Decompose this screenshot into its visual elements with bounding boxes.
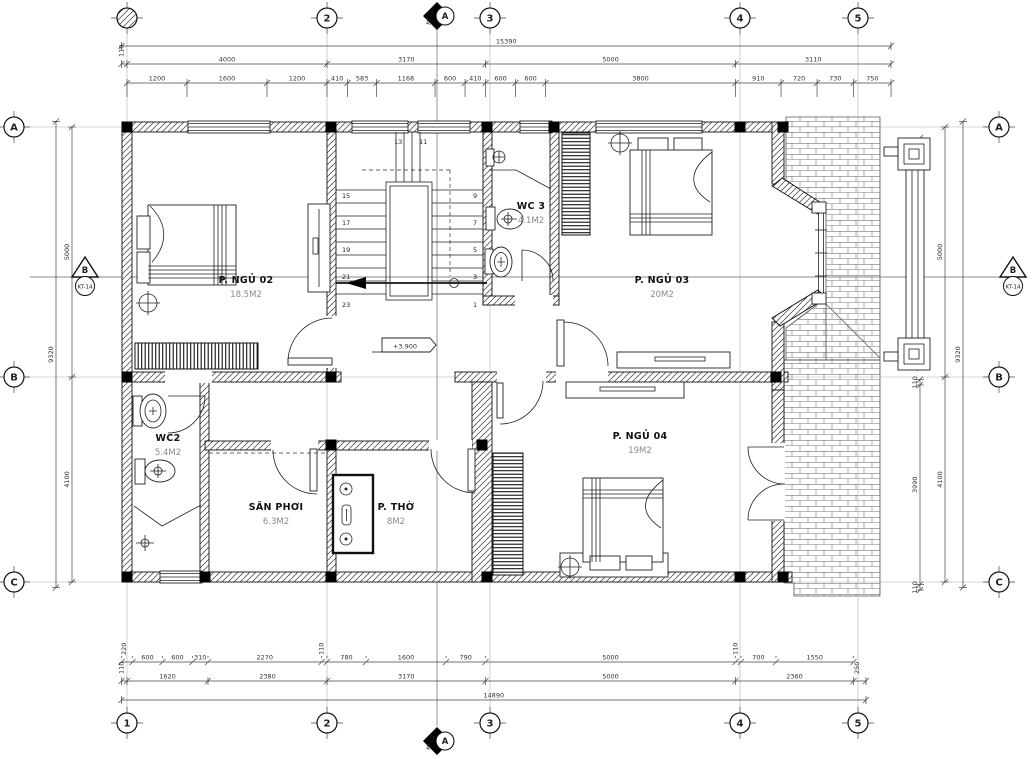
dim-label: 110 [117,662,125,674]
door-opening [497,371,546,383]
room-area: 18.5M2 [230,290,262,300]
dim-label: 600 [444,75,456,83]
pillow [626,556,652,570]
door-arc-bedroom02 [288,318,332,362]
desk [566,382,684,398]
section-marker-ref: KT-14 [1005,285,1021,291]
pillow [137,216,150,249]
toilet-tank [486,207,495,230]
dim-label: 1550 [806,654,823,662]
dim-label: 600 [494,75,506,83]
grid-bubble-col-1-top [117,8,137,28]
stair-number: 3 [473,273,477,281]
dim-label: 410 [469,75,481,83]
floor-plan-canvas: 1539011040003170500031101200160012004105… [0,0,1033,759]
stair-number: 17 [342,219,350,227]
door-arc-wc2 [168,396,205,433]
door-slab-bedroom02 [288,358,332,365]
door-opening [165,371,212,383]
pergola-stub [884,352,898,361]
column [326,440,337,451]
column [482,572,493,583]
room-area: 20M2 [650,290,674,300]
dim-label: 9320 [954,346,962,363]
stair-number: 7 [473,219,477,227]
dim-label: 3990 [911,476,919,493]
dim-label: 600 [524,75,536,83]
section-marker-letter: B [82,266,88,276]
stair-number: 9 [473,192,477,200]
grid-bubble-label: B [10,373,18,384]
stair-number: 21 [342,273,350,281]
wall [122,372,341,382]
bedroom04-furniture [493,382,684,577]
pergola-cap [898,338,930,370]
section-marker-letter: A [442,12,449,22]
bedroom02-furniture [135,204,330,369]
bay-jamb [812,293,826,304]
stair-number: 13 [394,138,402,146]
dim-label: 4000 [219,56,236,64]
door-slab-ptho [468,449,475,491]
column [122,122,133,133]
dim-label: 2380 [259,673,276,681]
grid-bubble-label: A [10,123,18,134]
dim-label: 583 [356,75,368,83]
dim-label: 720 [793,75,805,83]
shower-partition [134,505,201,526]
grid-bubble-label: 2 [324,719,331,730]
dim-label: 750 [866,75,878,83]
dim-label: 110 [117,45,125,57]
room-area: 5.4M2 [155,448,181,458]
shower-partition [489,170,551,189]
desk [617,352,730,368]
dim-label: 2360 [786,673,803,681]
bedroom03-furniture [562,133,730,368]
column [122,372,133,383]
room-name: SÂN PHƠI [249,501,304,513]
dim-label: 2270 [256,654,273,662]
dim-label: 110 [731,643,739,655]
dim-label: 250 [853,662,861,674]
room-area: 6.3M2 [263,517,289,527]
section-marker-letter: B [1010,266,1016,276]
column [549,122,560,133]
dim-label: 1200 [289,75,306,83]
grid-bubble-label: 2 [324,14,331,25]
bed [148,205,236,285]
dim-label: 700 [752,654,764,662]
elevation-value: +3.900 [393,343,417,351]
grid-bubble-label: 3 [487,14,494,25]
dim-label: 910 [752,75,764,83]
dim-label: 5000 [602,673,619,681]
dim-label: 1600 [219,75,236,83]
wardrobe [562,133,590,235]
wc3-fixtures [485,149,551,277]
pergola-stub [884,147,898,156]
pergola-beam [906,170,924,338]
pillow [590,556,620,570]
wall [122,122,132,582]
column [778,122,789,133]
dim-label: 5000 [63,244,71,261]
section-marker-ref: KT-14 [77,285,93,291]
room-name: P. NGỦ 04 [613,429,668,442]
stair-number: 23 [342,301,350,309]
dim-label: 110 [317,643,325,655]
dim-label: 3170 [398,56,415,64]
column [200,572,211,583]
wall [122,572,792,582]
grid-bubble-label: 4 [737,719,744,730]
section-marker-letter: A [442,737,449,747]
dim-label: 600 [171,654,183,662]
door-slab-bedroom04 [497,383,503,418]
column [778,572,789,583]
door-arc-wc3 [522,250,553,281]
pergola-cap [898,138,930,170]
louver-cabinet [135,343,258,369]
dim-label: 3110 [805,56,822,64]
grid-bubble-label: C [10,578,17,589]
grid-bubble-label: 5 [855,14,862,25]
column [771,372,782,383]
dim-label: 310 [194,654,206,662]
bay-jamb [812,202,826,213]
dim-label: 5000 [602,654,619,662]
dim-label: 1620 [159,673,176,681]
floor-plan-page: 1539011040003170500031101200160012004105… [0,0,1033,759]
toilet-tank [135,459,145,484]
column [735,572,746,583]
dim-label: 730 [829,75,841,83]
door-arc-bedroom04 [500,381,543,424]
stair-number: 5 [473,246,477,254]
door-arc-bedroom03 [564,322,608,366]
altar-room-furniture [333,475,373,553]
dim-label: 3800 [632,75,649,83]
dim-label: 110 [911,581,919,593]
roof-lower-field [784,360,880,596]
room-name: P. NGỦ 03 [635,273,690,286]
column [326,572,337,583]
wardrobe [493,453,523,575]
column [326,122,337,133]
column [477,440,488,451]
dim-label: 5000 [602,56,619,64]
grid-bubble-label: C [995,578,1002,589]
dim-label: 110 [911,376,919,388]
column [122,572,133,583]
dim-label: 220 [120,643,128,655]
wc2-fixtures [133,394,201,551]
altar-table [333,475,373,553]
door-slab-sanphoi [310,449,317,491]
stair-number: 19 [342,246,350,254]
dim-label: 600 [141,654,153,662]
stair-number: 1 [473,301,477,309]
wall [550,122,559,305]
door-opening [429,440,472,451]
staircase: +3.900 [336,132,487,352]
grid-bubble-label: B [995,373,1003,384]
dim-label: 14890 [483,692,504,700]
grid-bubble-label: 5 [855,719,862,730]
room-area: 4.1M2 [518,216,544,226]
pergola [884,138,930,370]
room-area: 19M2 [628,446,652,456]
stair-well-inner [390,186,428,296]
door-opening [515,295,553,306]
room-name: P. THỜ [378,501,415,513]
dim-label: 1200 [149,75,166,83]
room-name: P. NGỦ 02 [219,273,274,286]
door-opening [556,371,608,383]
dim-label: 4100 [936,471,944,488]
dim-label: 3170 [398,673,415,681]
grid-bubble-label: 4 [737,14,744,25]
room-name: WC2 [156,433,181,444]
grid-bubble-label: A [995,123,1003,134]
room-area: 8M2 [387,517,405,527]
grid-bubble-label: 1 [124,719,131,730]
room-name: WC 3 [517,201,546,212]
dim-label: 1168 [398,75,415,83]
dim-label: 790 [460,654,472,662]
stair-number: 11 [419,138,427,146]
column [735,122,746,133]
grid-bubble-label: 3 [487,719,494,730]
dim-label: 4100 [63,471,71,488]
column [326,372,337,383]
dim-label: 9320 [47,346,55,363]
dim-label: 410 [331,75,343,83]
dim-label: 15390 [496,38,517,46]
dim-label: 5000 [936,244,944,261]
stair-number: 15 [342,192,350,200]
dim-label: 1600 [398,654,415,662]
dim-label: 780 [340,654,352,662]
door-slab-bedroom03 [557,320,564,366]
column [482,122,493,133]
